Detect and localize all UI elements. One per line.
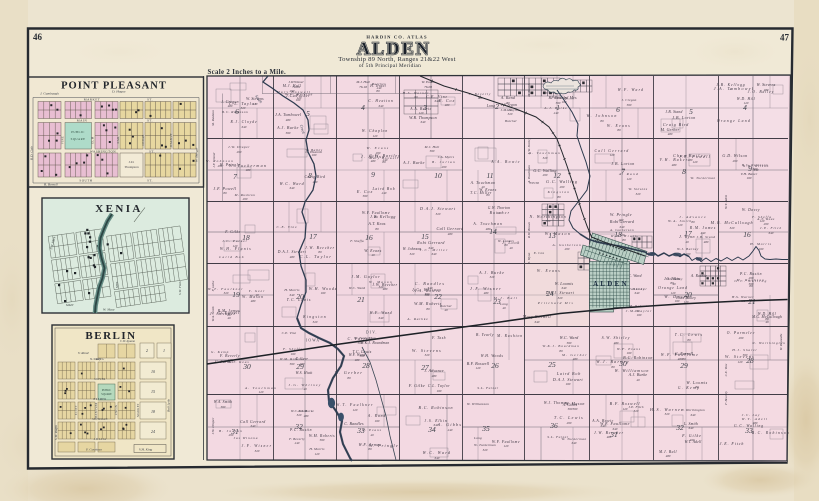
svg-text:D.A.J. Stewart: D.A.J. Stewart [545, 291, 575, 295]
svg-text:640: 640 [689, 426, 694, 430]
svg-text:480: 480 [672, 163, 677, 167]
svg-text:18: 18 [151, 409, 155, 414]
svg-text:S.W. Flick: S.W. Flick [178, 281, 182, 295]
svg-text:200: 200 [543, 173, 548, 177]
svg-text:640: 640 [251, 424, 256, 428]
svg-text:160: 160 [566, 382, 571, 386]
svg-text:Jas Winona: Jas Winona [234, 436, 259, 440]
svg-text:200: 200 [560, 185, 565, 189]
svg-text:Robt Gerrard: Robt Gerrard [416, 240, 445, 245]
svg-text:UNION: UNION [115, 405, 118, 415]
svg-text:480: 480 [614, 341, 619, 345]
svg-text:480: 480 [371, 159, 376, 163]
svg-text:C. Bandles: C. Bandles [344, 421, 364, 426]
svg-text:ST.: ST. [149, 149, 155, 153]
svg-text:C.W. Iguano: C.W. Iguano [120, 339, 135, 343]
svg-text:W. Tuckerman: W. Tuckerman [690, 176, 715, 180]
svg-text:29: 29 [680, 361, 688, 370]
svg-text:560: 560 [363, 194, 368, 198]
svg-text:480: 480 [448, 232, 453, 236]
svg-text:W. Mason: W. Mason [369, 280, 393, 284]
svg-text:H.J. Sharer: H.J. Sharer [731, 348, 758, 352]
svg-text:21: 21 [357, 295, 365, 304]
svg-text:11: 11 [487, 171, 494, 180]
svg-text:1: 1 [163, 348, 165, 353]
svg-text:560: 560 [627, 103, 632, 107]
svg-text:W. Chaplon: W. Chaplon [362, 129, 388, 133]
svg-text:160: 160 [637, 313, 642, 317]
svg-text:640: 640 [435, 99, 440, 103]
svg-text:Orange Land: Orange Land [658, 286, 688, 290]
svg-text:320: 320 [636, 192, 641, 196]
svg-text:160: 160 [375, 419, 380, 423]
svg-text:80: 80 [691, 220, 695, 224]
svg-text:J.A. Tombowel: J.A. Tombowel [275, 112, 302, 117]
svg-text:R. Bowell: R. Bowell [43, 183, 58, 187]
svg-text:640: 640 [601, 424, 606, 428]
svg-text:W.T. Faulkner: W.T. Faulkner [336, 403, 374, 407]
svg-text:W. Stevens: W. Stevens [628, 187, 648, 191]
svg-text:120: 120 [373, 134, 378, 138]
svg-text:Pritchard Mrs: Pritchard Mrs [537, 301, 574, 305]
svg-text:W. Williamson: W. Williamson [615, 368, 650, 373]
svg-text:480: 480 [607, 435, 612, 439]
svg-text:J.E. Fitch: J.E. Fitch [760, 226, 782, 230]
svg-text:B. Yearly: B. Yearly [476, 333, 494, 337]
svg-text:V.H. King: V.H. King [139, 448, 153, 452]
svg-text:J.B. Lorton: J.B. Lorton [672, 115, 696, 120]
svg-text:V. Rond: V. Rond [78, 351, 89, 355]
svg-text:J.B. Stand: J.B. Stand [697, 235, 716, 239]
svg-text:24: 24 [151, 429, 155, 434]
svg-text:40: 40 [303, 387, 307, 391]
svg-text:W.K.J. Boardman: W.K.J. Boardman [542, 344, 579, 348]
svg-text:320: 320 [255, 449, 260, 453]
svg-text:80: 80 [600, 119, 604, 123]
svg-text:MOYER: MOYER [94, 378, 105, 381]
svg-text:W.C. Ward: W.C. Ward [560, 335, 580, 340]
svg-text:25: 25 [548, 360, 556, 369]
svg-text:A.T. Keas: A.T. Keas [756, 217, 775, 221]
svg-text:S.W. Shirley: S.W. Shirley [527, 137, 531, 154]
svg-text:W.S. Hiatt: W.S. Hiatt [296, 371, 314, 375]
svg-text:320: 320 [634, 409, 639, 413]
svg-text:M.G. McCullough: M.G. McCullough [710, 220, 754, 225]
svg-text:E. Cox: E. Cox [533, 251, 545, 255]
svg-text:A.J. Burke: A.J. Burke [543, 106, 567, 110]
svg-text:80: 80 [504, 243, 508, 247]
svg-text:A. Rand: A. Rand [618, 172, 639, 176]
svg-text:A.J. Burke: A.J. Burke [297, 409, 315, 413]
svg-text:W. Evans: W. Evans [422, 80, 436, 84]
svg-text:A. Gutherson: A. Gutherson [609, 228, 634, 232]
svg-text:N. Worthington: N. Worthington [680, 408, 705, 412]
svg-text:J. Advance: J. Advance [424, 368, 443, 373]
svg-text:O. Parmelee: O. Parmelee [727, 331, 756, 335]
svg-text:80: 80 [506, 101, 510, 105]
svg-text:480: 480 [484, 291, 489, 295]
svg-text:560: 560 [320, 438, 325, 442]
svg-text:320: 320 [436, 212, 441, 216]
svg-text:640: 640 [242, 125, 247, 129]
svg-text:333.58: 333.58 [529, 181, 539, 185]
svg-text:17: 17 [309, 232, 317, 241]
svg-text:R.M. James: R.M. James [689, 226, 716, 230]
svg-text:A.J. Burke: A.J. Burke [402, 160, 425, 165]
svg-text:640: 640 [562, 286, 567, 290]
svg-text:V.H. Baker: V.H. Baker [659, 158, 688, 162]
svg-text:MAIN: MAIN [65, 303, 74, 307]
svg-text:40: 40 [765, 320, 769, 324]
svg-text:40: 40 [502, 306, 506, 310]
svg-text:J. Cregon: J. Cregon [621, 98, 636, 102]
svg-text:J. Advance: J. Advance [679, 215, 707, 219]
svg-text:R.W. Brown: R.W. Brown [527, 222, 531, 239]
svg-text:J. Wynn: J. Wynn [679, 234, 695, 239]
svg-text:480: 480 [304, 414, 309, 418]
svg-text:160: 160 [291, 352, 296, 356]
svg-text:ST.: ST. [147, 98, 153, 102]
svg-text:80: 80 [682, 357, 686, 361]
svg-text:W. Evans: W. Evans [367, 146, 390, 150]
svg-text:Thompson: Thompson [124, 165, 138, 169]
svg-text:8: 8 [682, 167, 686, 176]
svg-text:W. Banger: W. Banger [195, 147, 199, 162]
svg-text:80: 80 [374, 215, 378, 219]
svg-text:160: 160 [437, 389, 442, 393]
svg-text:40: 40 [509, 246, 513, 250]
svg-text:W. Stevens: W. Stevens [757, 82, 776, 87]
svg-text:480: 480 [286, 118, 291, 122]
svg-text:47: 47 [780, 33, 790, 43]
svg-text:480: 480 [666, 454, 671, 458]
svg-text:240: 240 [448, 428, 453, 432]
svg-text:320: 320 [665, 412, 670, 416]
svg-text:F. Beverly: F. Beverly [724, 391, 728, 406]
svg-text:J.B. Stand: J.B. Stand [665, 110, 682, 114]
svg-text:320: 320 [297, 413, 302, 417]
svg-text:A.A. Bowie: A.A. Bowie [591, 419, 614, 423]
svg-text:640: 640 [635, 291, 640, 295]
svg-text:200: 200 [733, 159, 738, 163]
svg-text:W. Evans: W. Evans [537, 269, 561, 273]
svg-text:WASHINGTON: WASHINGTON [90, 149, 116, 153]
svg-text:D.A.J. Stewart: D.A.J. Stewart [277, 250, 307, 254]
svg-text:560: 560 [556, 101, 561, 105]
svg-text:C.E. Vine: C.E. Vine [282, 331, 297, 335]
svg-text:320: 320 [241, 106, 246, 110]
svg-text:640: 640 [290, 186, 295, 190]
svg-text:80: 80 [749, 284, 753, 288]
svg-text:W.F. Ward: W.F. Ward [618, 88, 645, 92]
svg-text:B.C. Robinson: B.C. Robinson [623, 355, 653, 360]
svg-text:15: 15 [151, 389, 155, 394]
svg-text:Laird Bob: Laird Bob [218, 255, 244, 259]
svg-text:W.M. Roberts: W.M. Roberts [280, 357, 305, 361]
svg-text:320: 320 [490, 275, 495, 279]
svg-text:B.C. Robinson: B.C. Robinson [222, 110, 248, 114]
svg-text:ALDEN: ALDEN [593, 281, 629, 288]
svg-text:W.A. Smith: W.A. Smith [214, 400, 232, 404]
svg-text:120: 120 [627, 177, 632, 181]
svg-text:10: 10 [151, 369, 155, 374]
svg-text:80: 80 [687, 338, 691, 342]
svg-text:J.A. Myers: J.A. Myers [438, 155, 455, 159]
svg-text:W.K.J. Boardman: W.K.J. Boardman [361, 341, 390, 345]
svg-text:480: 480 [355, 358, 360, 362]
svg-text:F. Gilke: F. Gilke [224, 230, 241, 234]
svg-text:240: 240 [295, 441, 300, 445]
svg-text:480: 480 [688, 158, 693, 162]
svg-text:MARKET: MARKET [84, 98, 100, 102]
svg-text:80: 80 [557, 195, 561, 199]
svg-text:ELM: ELM [92, 136, 95, 143]
svg-text:S.W. Ralph: S.W. Ralph [54, 425, 58, 440]
svg-text:14: 14 [489, 227, 497, 236]
svg-text:22: 22 [434, 292, 442, 301]
svg-text:W. Reynolds: W. Reynolds [779, 333, 783, 350]
svg-text:320: 320 [543, 156, 548, 160]
svg-text:560: 560 [221, 405, 226, 409]
svg-text:B.C. Robinson: B.C. Robinson [419, 405, 454, 410]
svg-text:10: 10 [434, 171, 442, 180]
svg-text:7: 7 [233, 172, 237, 181]
svg-text:D. Hogue: D. Hogue [111, 90, 126, 94]
svg-text:40: 40 [292, 94, 296, 98]
svg-text:J. Gambaugh: J. Gambaugh [40, 92, 59, 96]
svg-text:640: 640 [428, 286, 433, 290]
svg-text:S.L. Furner: S.L. Furner [477, 386, 498, 390]
svg-text:80: 80 [375, 227, 379, 231]
svg-text:560: 560 [360, 354, 365, 358]
svg-text:80: 80 [376, 89, 380, 93]
svg-text:W.T. Adell: W.T. Adell [724, 195, 728, 209]
svg-text:200: 200 [565, 247, 570, 251]
svg-text:120: 120 [419, 111, 424, 115]
svg-text:P.C. Bustin: P.C. Bustin [289, 428, 312, 432]
svg-text:J.C. Packer: J.C. Packer [222, 239, 248, 243]
svg-text:80: 80 [670, 281, 674, 285]
svg-text:Long: Long [473, 436, 482, 440]
svg-text:16: 16 [743, 230, 751, 239]
svg-text:W. Pringle: W. Pringle [610, 212, 632, 217]
svg-text:IOWA: IOWA [306, 339, 320, 343]
svg-text:H. Morris: H. Morris [308, 447, 325, 451]
svg-text:74.69: 74.69 [292, 85, 300, 89]
svg-text:J.W. Draper: J.W. Draper [228, 145, 250, 149]
svg-text:J. Wynn: J. Wynn [527, 252, 531, 263]
svg-text:B. Julian: B. Julian [432, 160, 456, 164]
svg-text:320: 320 [224, 291, 229, 295]
svg-text:Scale 2 Inches to a Mile.: Scale 2 Inches to a Mile. [208, 69, 287, 76]
svg-text:480: 480 [432, 374, 437, 378]
svg-text:W. Johnson: W. Johnson [586, 113, 617, 118]
svg-text:T.C. Lewis: T.C. Lewis [287, 298, 312, 302]
svg-text:W.F. Ward: W.F. Ward [369, 311, 392, 315]
svg-text:W.H. Woods: W.H. Woods [481, 354, 504, 358]
svg-text:640: 640 [432, 252, 437, 256]
svg-text:T.C. Lewis: T.C. Lewis [675, 333, 704, 337]
svg-text:320: 320 [425, 353, 430, 357]
svg-text:W.C. Ward: W.C. Ward [349, 286, 365, 290]
svg-text:Kingston: Kingston [302, 315, 327, 319]
svg-text:H. Morris: H. Morris [749, 242, 772, 246]
svg-text:WALNUT: WALNUT [170, 133, 173, 147]
svg-text:M. Rushton: M. Rushton [211, 110, 215, 127]
svg-text:HANOVER: HANOVER [95, 402, 98, 417]
svg-text:Kingston: Kingston [547, 190, 571, 194]
svg-text:PUBLIC: PUBLIC [102, 389, 111, 392]
svg-text:SQUARE: SQUARE [71, 137, 86, 141]
svg-text:120: 120 [476, 366, 481, 370]
svg-text:640: 640 [572, 441, 577, 445]
svg-text:160: 160 [747, 176, 752, 180]
svg-text:32: 32 [675, 423, 684, 432]
svg-text:120: 120 [259, 390, 264, 394]
svg-text:OAK: OAK [117, 136, 120, 143]
svg-text:200: 200 [229, 433, 234, 437]
svg-text:H. Morris: H. Morris [283, 288, 300, 292]
svg-text:560: 560 [290, 362, 295, 366]
svg-text:480: 480 [753, 421, 758, 425]
svg-text:9: 9 [371, 170, 375, 179]
svg-text:M.J. Hull: M.J. Hull [355, 80, 369, 84]
svg-text:SCOTT: SCOTT [75, 405, 78, 415]
svg-text:160: 160 [321, 291, 326, 295]
svg-text:Laird Bob: Laird Bob [556, 371, 581, 376]
svg-text:200: 200 [442, 165, 447, 169]
svg-text:B. Yearly: B. Yearly [548, 95, 567, 100]
svg-text:DIV.: DIV. [366, 331, 378, 335]
svg-text:120: 120 [315, 452, 320, 456]
svg-text:640: 640 [769, 231, 774, 235]
svg-text:W.A. Smith: W.A. Smith [211, 306, 215, 321]
svg-text:Long: Long [486, 104, 495, 108]
svg-text:J.W. Draper: J.W. Draper [211, 417, 215, 434]
svg-text:C.E. Vine: C.E. Vine [724, 363, 728, 376]
svg-text:A. Rand: A. Rand [500, 95, 516, 100]
svg-text:XENIA: XENIA [95, 203, 142, 215]
svg-text:640: 640 [691, 413, 696, 417]
svg-text:160: 160 [690, 438, 695, 442]
svg-text:640: 640 [421, 120, 426, 124]
svg-text:40: 40 [444, 308, 448, 312]
svg-text:240: 240 [554, 111, 559, 115]
svg-text:480: 480 [668, 132, 673, 136]
svg-text:200: 200 [243, 197, 248, 201]
svg-text:of 5th Principal Meridian: of 5th Principal Meridian [359, 62, 421, 69]
svg-text:W.M. Roberts: W.M. Roberts [414, 301, 442, 306]
svg-text:200: 200 [764, 222, 769, 226]
svg-text:A. Touchman: A. Touchman [528, 151, 561, 155]
svg-text:A. Gibbs: A. Gibbs [437, 422, 462, 427]
svg-text:120: 120 [623, 407, 628, 411]
svg-text:J.O. Bailey: J.O. Bailey [748, 90, 774, 94]
svg-text:F. Gilke: F. Gilke [211, 280, 215, 292]
svg-text:80: 80 [426, 307, 430, 311]
svg-text:J.B. Lorton: J.B. Lorton [611, 161, 635, 166]
svg-text:46: 46 [33, 32, 43, 42]
svg-text:120: 120 [297, 96, 302, 100]
svg-text:J.F. Wisner: J.F. Wisner [212, 152, 216, 168]
svg-text:W. Pringle: W. Pringle [220, 163, 241, 167]
svg-text:80: 80 [414, 95, 418, 99]
svg-text:40: 40 [621, 167, 625, 171]
svg-text:200: 200 [739, 336, 744, 340]
svg-text:MARKET: MARKET [137, 403, 140, 416]
svg-text:W.H. Flants: W.H. Flants [220, 247, 252, 251]
svg-text:320: 320 [558, 296, 563, 300]
svg-text:480: 480 [445, 103, 450, 107]
svg-text:480: 480 [300, 362, 305, 366]
svg-text:80: 80 [622, 238, 626, 242]
svg-text:560: 560 [430, 149, 435, 153]
svg-text:F. Tash: F. Tash [431, 336, 446, 340]
svg-text:S.L. Furner: S.L. Furner [547, 435, 568, 439]
svg-text:80: 80 [318, 250, 322, 254]
svg-text:F. Sheffa: F. Sheffa [349, 239, 364, 243]
svg-text:F. Gilke: F. Gilke [408, 383, 426, 388]
svg-text:W. Mason: W. Mason [565, 401, 585, 406]
svg-text:W. Stevens: W. Stevens [725, 354, 755, 359]
svg-text:W. Mason: W. Mason [545, 231, 571, 236]
svg-text:120: 120 [353, 408, 358, 412]
svg-text:J.M. Gaylor: J.M. Gaylor [351, 274, 380, 279]
svg-text:Butcher: Butcher [505, 119, 518, 123]
svg-text:A.A. Bowie: A.A. Bowie [490, 160, 521, 164]
svg-text:80: 80 [368, 447, 372, 451]
svg-text:T.C. Lewis: T.C. Lewis [554, 415, 584, 420]
svg-text:480: 480 [486, 227, 491, 231]
svg-text:28: 28 [362, 361, 370, 370]
svg-text:320: 320 [730, 226, 735, 230]
svg-text:C.L. Taylor: C.L. Taylor [428, 384, 450, 388]
svg-text:120: 120 [693, 160, 698, 164]
svg-text:40: 40 [371, 253, 375, 257]
svg-text:AMALIA: AMALIA [94, 438, 107, 441]
svg-text:26: 26 [491, 361, 499, 370]
svg-text:W. Macy: W. Macy [103, 308, 115, 312]
svg-text:ST.: ST. [147, 179, 153, 183]
svg-text:640: 640 [290, 293, 295, 297]
svg-text:560: 560 [425, 292, 430, 296]
svg-text:SOUTH: SOUTH [79, 179, 92, 183]
svg-text:240: 240 [382, 191, 387, 195]
svg-text:S.W. Shirley: S.W. Shirley [602, 336, 631, 340]
svg-text:40: 40 [685, 240, 689, 244]
svg-text:R.D. Cole: R.D. Cole [29, 146, 33, 161]
svg-text:A.J. Burke: A.J. Burke [276, 125, 299, 130]
svg-text:J.F. Wisner: J.F. Wisner [242, 444, 273, 448]
svg-text:MILL: MILL [115, 281, 119, 289]
svg-text:C. Farrell: C. Farrell [675, 351, 694, 356]
svg-text:36: 36 [549, 421, 558, 430]
svg-text:320: 320 [620, 233, 625, 237]
svg-text:320: 320 [313, 320, 318, 324]
svg-text:G.C. Walling: G.C. Walling [734, 424, 764, 428]
svg-text:320: 320 [508, 112, 513, 116]
svg-text:C.L. Taylor: C.L. Taylor [300, 254, 333, 259]
svg-text:Ball Lytle: Ball Lytle [167, 398, 171, 412]
svg-text:H. Troxel: H. Troxel [369, 84, 386, 88]
svg-text:19: 19 [232, 290, 240, 299]
svg-text:200: 200 [237, 150, 242, 154]
svg-text:80: 80 [223, 191, 227, 195]
svg-text:Township 89 North, Ranges 21&: Township 89 North, Ranges 21&22 West [338, 56, 455, 63]
svg-text:ST.: ST. [147, 119, 153, 123]
svg-text:J.E. Fitch: J.E. Fitch [720, 441, 745, 446]
svg-text:BREMER: BREMER [93, 398, 106, 401]
